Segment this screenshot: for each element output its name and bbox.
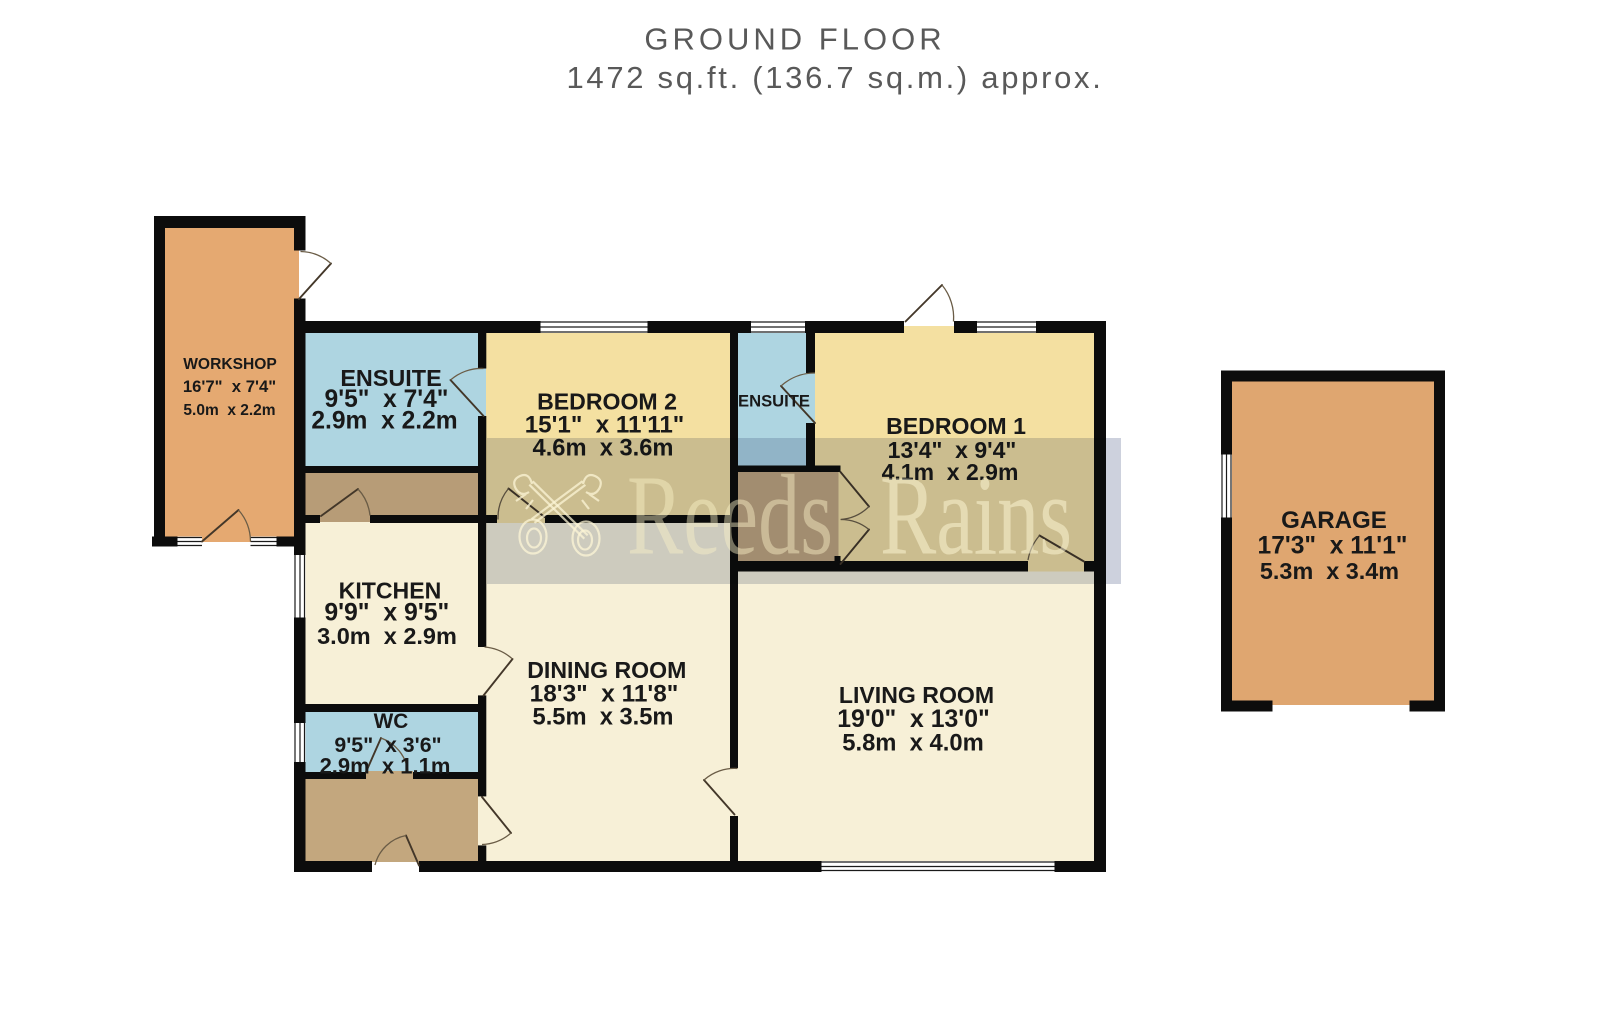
svg-text:GROUND FLOOR: GROUND FLOOR	[644, 22, 945, 57]
svg-text:1472 sq.ft. (136.7 sq.m.) appr: 1472 sq.ft. (136.7 sq.m.) approx.	[566, 60, 1103, 95]
svg-text:WORKSHOP: WORKSHOP	[183, 356, 277, 373]
svg-text:2.9m x 2.2m: 2.9m x 2.2m	[311, 408, 457, 435]
svg-text:5.5m x 3.5m: 5.5m x 3.5m	[533, 705, 674, 731]
svg-text:DINING ROOM: DINING ROOM	[527, 657, 686, 683]
svg-text:Rains: Rains	[880, 452, 1072, 578]
svg-text:15'1" x 11'11": 15'1" x 11'11"	[525, 412, 685, 439]
svg-text:GARAGE: GARAGE	[1281, 507, 1387, 534]
svg-text:5.0m x 2.2m: 5.0m x 2.2m	[183, 402, 275, 419]
svg-text:WC: WC	[374, 710, 409, 733]
svg-text:5.3m x 3.4m: 5.3m x 3.4m	[1260, 558, 1399, 584]
svg-text:16'7" x 7'4": 16'7" x 7'4"	[183, 377, 276, 396]
svg-text:BEDROOM 1: BEDROOM 1	[886, 413, 1026, 439]
svg-text:5.8m x 4.0m: 5.8m x 4.0m	[842, 730, 984, 757]
svg-text:3.0m x 2.9m: 3.0m x 2.9m	[317, 623, 457, 649]
svg-text:17'3" x 11'1": 17'3" x 11'1"	[1258, 532, 1408, 559]
svg-text:Reeds: Reeds	[627, 452, 833, 578]
svg-text:ENSUITE: ENSUITE	[738, 391, 810, 410]
svg-text:LIVING ROOM: LIVING ROOM	[839, 682, 994, 708]
svg-text:2.9m x 1.1m: 2.9m x 1.1m	[320, 754, 451, 779]
